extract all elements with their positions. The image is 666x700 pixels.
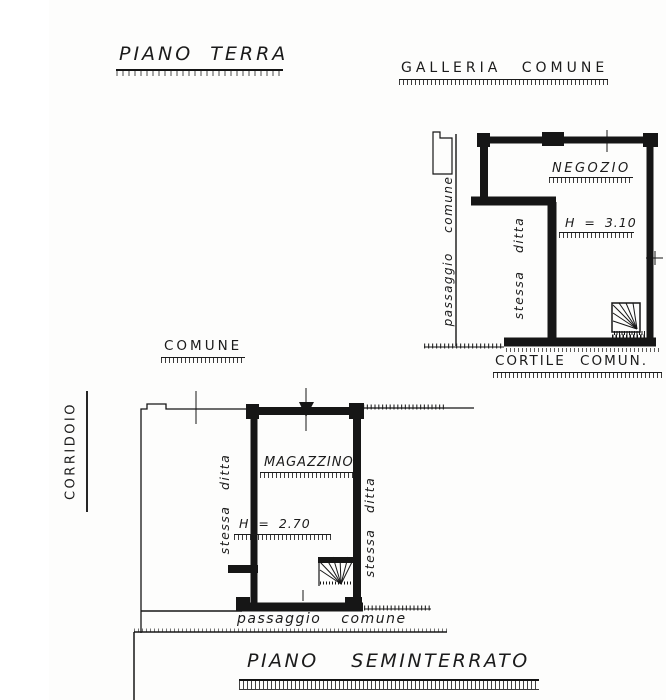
negozio-height-underline bbox=[559, 232, 634, 238]
scan-seam bbox=[0, 0, 49, 700]
negozio-label: NEGOZIO bbox=[552, 162, 631, 175]
stessa-ditta-terra-label: stessa ditta bbox=[513, 217, 526, 320]
corridoio-label: CORRIDOIO bbox=[65, 402, 78, 500]
piano-terra-underline bbox=[116, 69, 283, 76]
wall-recess bbox=[433, 132, 452, 174]
comune-label: COMUNE bbox=[164, 340, 242, 354]
piano-seminterrato-plan bbox=[120, 385, 480, 700]
negozio-height-label: H = 3.10 bbox=[565, 217, 637, 230]
magazzino-height-label: H = 2.70 bbox=[239, 518, 311, 531]
negozio-underline bbox=[549, 177, 633, 183]
piano-terra-title: PIANO TERRA bbox=[119, 45, 288, 64]
stessa-ditta-right-label: stessa ditta bbox=[364, 477, 377, 578]
passaggio-comune-terra-label: passaggio comune bbox=[442, 176, 454, 327]
stairs-icon bbox=[318, 557, 356, 586]
galleria-comune-label: GALLERIA COMUNE bbox=[401, 61, 608, 75]
galleria-comune-underline bbox=[399, 79, 608, 85]
corridor-outline bbox=[141, 404, 252, 633]
comune-underline bbox=[161, 357, 245, 363]
walls bbox=[134, 388, 474, 700]
passaggio-comune-bottom-label: passaggio comune bbox=[237, 612, 407, 626]
stairs-icon bbox=[612, 303, 648, 337]
cortile-comune-underline bbox=[493, 372, 662, 378]
magazzino-label: MAGAZZINO bbox=[264, 456, 354, 469]
magazzino-height-underline bbox=[234, 534, 331, 540]
corridoio-underline bbox=[86, 391, 88, 512]
stessa-ditta-left-label: stessa ditta bbox=[219, 454, 232, 555]
magazzino-underline bbox=[260, 472, 353, 478]
floor-plan-document: PIANO TERRA GALLERIA COMUNE COMUNE CORRI… bbox=[0, 0, 666, 700]
